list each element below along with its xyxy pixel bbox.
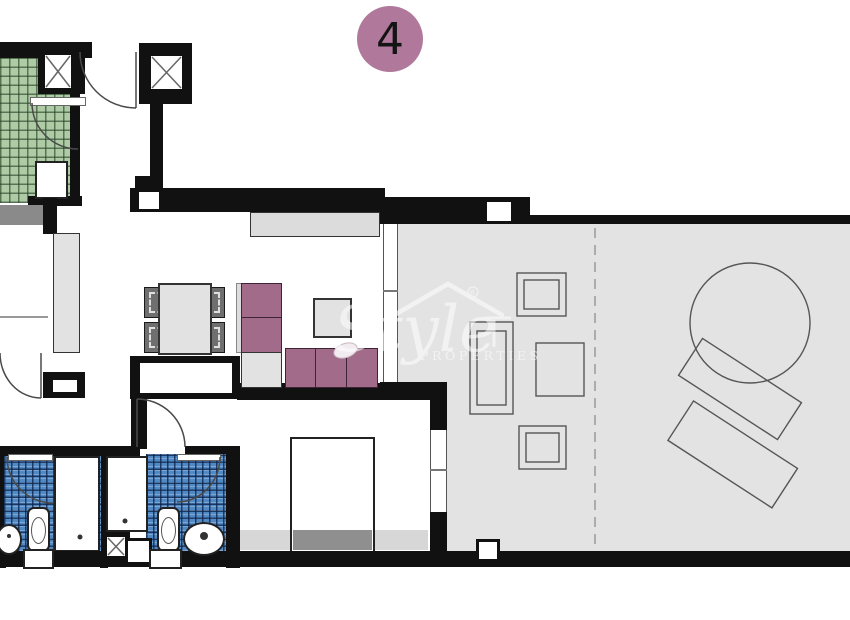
pillar [139,192,159,209]
bed-footer [293,530,372,550]
wall-terrace-top-thin [530,215,850,224]
sliding-door-living [383,224,398,382]
sofa-cushion [285,348,316,388]
door-arc [80,52,136,108]
toilet-pedestal [149,549,182,569]
duct-x-icon [151,56,182,89]
sofa-cushion [241,283,282,319]
pillar [476,539,500,562]
window-divider [430,469,447,471]
lintel-gray-band [0,205,48,225]
window-divider [383,290,398,292]
wall-bedroom-left [131,397,147,449]
wardrobe [53,233,80,353]
sink-icon [183,522,225,556]
partition-line [0,316,48,318]
terrace-floor [383,224,850,551]
sofa-cushion [241,317,282,353]
sofa-corner-table [241,352,282,388]
unit-badge: 4 [357,6,423,72]
toilet-pedestal [23,549,54,569]
pillar [487,202,511,221]
bath-door-leaf [8,454,53,461]
unit-number: 4 [376,14,404,65]
wall-living-top [130,188,385,212]
floor-plan: R Style PROPERTIES 4 [0,0,850,620]
utility-box [125,538,152,565]
door-arc [0,353,41,398]
wall-bedroom-right [430,400,447,432]
green-bath-door-leaf [30,97,86,106]
window-bedroom [430,430,447,512]
shower-tray [35,161,68,199]
coffee-table [313,298,352,338]
wall-bath-right [226,446,240,568]
duct-x-icon [107,537,125,556]
wall-corridor [43,198,57,234]
duct-x-icon [45,55,71,88]
toilet-bowl [31,517,46,544]
wall-bedroom-top-right [380,382,447,400]
toilet-bowl [161,517,176,544]
shower-tray [106,456,148,532]
wall-notch [53,380,77,392]
shower-tray [54,456,100,552]
kitchen-counter [250,212,380,237]
bath-door-leaf [177,454,221,461]
sideboard-top [140,363,232,393]
dining-table [158,283,212,355]
wall-bedroom-right-low [430,512,447,554]
